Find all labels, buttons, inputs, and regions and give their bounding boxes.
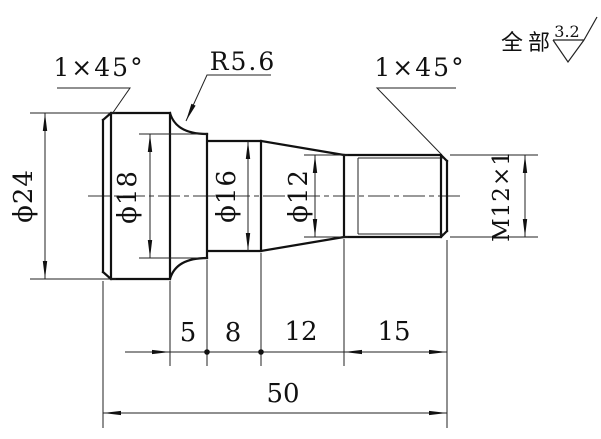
chamfer-right-label: 1×45° bbox=[374, 53, 465, 82]
dim-length-50: 50 bbox=[266, 379, 299, 409]
surface-finish-note: 全部 3.2 bbox=[501, 17, 597, 62]
dim-phi18-label: ϕ18 bbox=[113, 170, 143, 224]
dim-length-12: 12 bbox=[284, 317, 317, 347]
dim-phi12-label: ϕ12 bbox=[284, 169, 314, 223]
chamfer-left-leader bbox=[57, 88, 130, 114]
dim-length-15: 15 bbox=[377, 317, 410, 347]
dim-length-5: 5 bbox=[180, 318, 197, 348]
annotation-chamfer-left: 1×45° bbox=[53, 53, 144, 114]
drawing-sheet: ϕ24 ϕ18 ϕ16 ϕ12 M12×1 5 8 12 15 bbox=[0, 0, 601, 439]
engineering-drawing: ϕ24 ϕ18 ϕ16 ϕ12 M12×1 5 8 12 15 bbox=[0, 0, 601, 439]
annotation-chamfer-right: 1×45° bbox=[374, 53, 465, 154]
chamfer-left-label: 1×45° bbox=[53, 53, 144, 82]
surface-finish-scope-label: 全部 bbox=[501, 31, 555, 56]
surface-roughness-value: 3.2 bbox=[554, 22, 579, 41]
chamfer-right-leader bbox=[377, 88, 456, 154]
annotation-fillet: R5.6 bbox=[186, 47, 276, 121]
dim-chain-dot-terminator bbox=[204, 349, 210, 355]
fillet-leader-arrowhead bbox=[186, 104, 196, 121]
dim-phi16-label: ϕ16 bbox=[212, 169, 242, 223]
fillet-leader bbox=[186, 75, 271, 121]
dim-length-8: 8 bbox=[225, 318, 242, 348]
dim-thread-m12x1: M12×1 bbox=[450, 150, 538, 242]
dim-m12-label: M12×1 bbox=[489, 150, 515, 242]
dim-chain-dot-terminator bbox=[258, 349, 264, 355]
dim-phi24-label: ϕ24 bbox=[9, 169, 39, 223]
fillet-label: R5.6 bbox=[210, 47, 277, 76]
